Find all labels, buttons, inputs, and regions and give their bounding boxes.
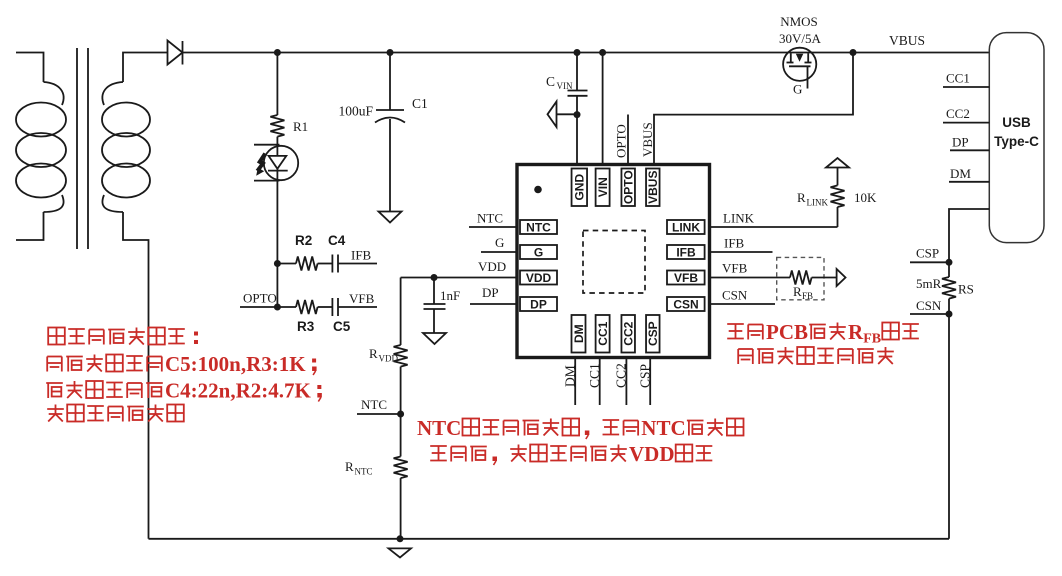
- svg-text:C4: C4: [328, 233, 346, 248]
- svg-text:USB: USB: [1002, 115, 1031, 130]
- svg-text:CSP: CSP: [646, 321, 660, 346]
- svg-text:CC1: CC1: [587, 363, 602, 388]
- svg-text:DM: DM: [950, 166, 971, 181]
- svg-text:CSP: CSP: [916, 246, 939, 261]
- svg-text:5mR: 5mR: [916, 276, 942, 291]
- svg-text:30V/5A: 30V/5A: [779, 31, 822, 46]
- svg-text:C5:100n,R3:1K: C5:100n,R3:1K: [165, 352, 306, 376]
- svg-text:OPTO: OPTO: [243, 291, 277, 306]
- svg-text:DP: DP: [952, 135, 969, 150]
- svg-text:R: R: [793, 284, 802, 299]
- svg-text:Type-C: Type-C: [994, 134, 1039, 149]
- svg-text:C: C: [546, 74, 555, 89]
- svg-text:R: R: [848, 320, 864, 344]
- svg-text:CSN: CSN: [916, 298, 942, 313]
- svg-text:DP: DP: [482, 285, 499, 300]
- svg-text:CC1: CC1: [946, 71, 970, 86]
- svg-text:VDD: VDD: [379, 354, 399, 364]
- svg-text:VFB: VFB: [722, 261, 748, 276]
- svg-text:GND: GND: [573, 174, 587, 201]
- svg-text:G: G: [534, 246, 543, 260]
- svg-text:1nF: 1nF: [440, 288, 460, 303]
- svg-text:PCB: PCB: [766, 320, 808, 344]
- svg-text:DM: DM: [563, 365, 578, 387]
- svg-text:FB: FB: [802, 291, 813, 301]
- svg-text:VFB: VFB: [674, 271, 698, 285]
- svg-text:FB: FB: [863, 332, 881, 347]
- svg-text:RS: RS: [958, 282, 974, 297]
- svg-text:CSN: CSN: [673, 298, 698, 312]
- svg-text:VDD: VDD: [478, 259, 506, 274]
- svg-text:NTC: NTC: [355, 467, 373, 477]
- svg-text:NTC: NTC: [526, 221, 551, 235]
- svg-text:IFB: IFB: [351, 248, 372, 263]
- svg-text:VIN: VIN: [596, 177, 610, 197]
- svg-text:C4:22n,R2:4.7K: C4:22n,R2:4.7K: [165, 379, 311, 403]
- svg-text:NTC: NTC: [641, 416, 685, 440]
- svg-text:VBUS: VBUS: [889, 33, 925, 48]
- svg-text:IFB: IFB: [676, 246, 696, 260]
- svg-text:IFB: IFB: [724, 236, 745, 251]
- svg-text:LINK: LINK: [807, 198, 829, 208]
- svg-text:DP: DP: [530, 298, 547, 312]
- svg-text:G: G: [495, 235, 504, 250]
- svg-text:VBUS: VBUS: [640, 122, 655, 157]
- svg-text:VIN: VIN: [557, 81, 573, 91]
- svg-text:VDD: VDD: [526, 271, 552, 285]
- svg-text:VFB: VFB: [349, 291, 375, 306]
- svg-text:R1: R1: [293, 119, 308, 134]
- svg-text:R: R: [345, 459, 354, 474]
- svg-text:LINK: LINK: [672, 221, 700, 235]
- svg-text:DM: DM: [572, 324, 586, 343]
- svg-text:NTC: NTC: [477, 211, 503, 226]
- svg-text:100uF: 100uF: [338, 104, 373, 119]
- svg-text:NMOS: NMOS: [780, 14, 818, 29]
- svg-text:CSP: CSP: [638, 364, 653, 388]
- svg-text:G: G: [793, 82, 802, 97]
- svg-text:CC2: CC2: [946, 106, 970, 121]
- svg-text:R3: R3: [297, 319, 315, 334]
- svg-text:R: R: [797, 190, 806, 205]
- svg-text:CC2: CC2: [622, 321, 636, 345]
- svg-text:CC1: CC1: [596, 321, 610, 345]
- svg-text:OPTO: OPTO: [622, 170, 636, 204]
- svg-text:R2: R2: [295, 233, 312, 248]
- svg-text:NTC: NTC: [417, 416, 461, 440]
- svg-text:VDD: VDD: [629, 442, 675, 466]
- svg-text:CC2: CC2: [614, 363, 629, 388]
- svg-text:CSN: CSN: [722, 288, 748, 303]
- svg-text:C5: C5: [333, 319, 351, 334]
- svg-text:R: R: [369, 346, 378, 361]
- svg-text:VBUS: VBUS: [646, 171, 660, 204]
- svg-text:OPTO: OPTO: [614, 124, 629, 158]
- svg-text:C1: C1: [412, 96, 428, 111]
- svg-text:10K: 10K: [854, 190, 877, 205]
- svg-text:LINK: LINK: [723, 211, 755, 226]
- svg-text:NTC: NTC: [361, 397, 387, 412]
